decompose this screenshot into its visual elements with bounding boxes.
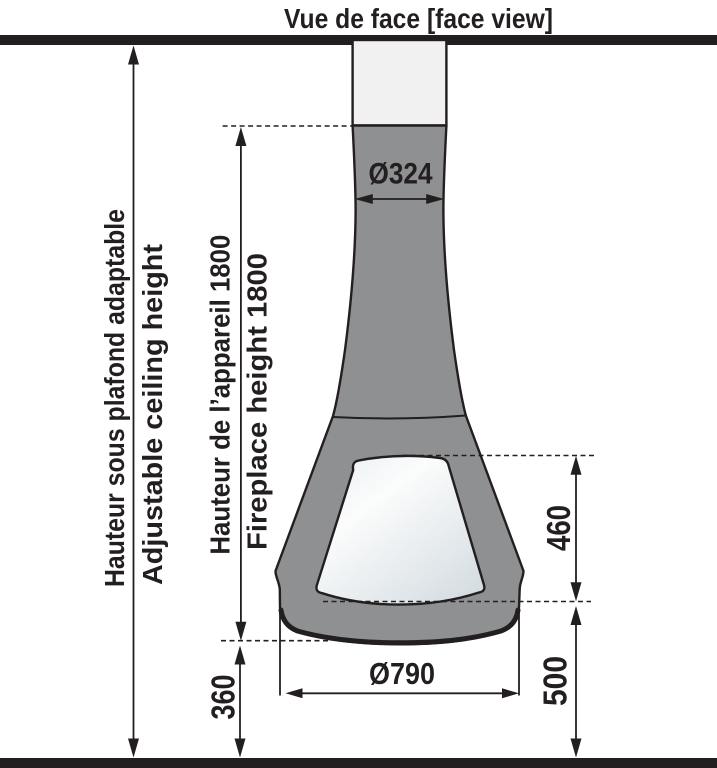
svg-text:Hauteur sous plafond adaptable: Hauteur sous plafond adaptable bbox=[99, 209, 130, 587]
svg-text:360: 360 bbox=[205, 675, 242, 720]
svg-text:Adjustable ceiling height: Adjustable ceiling height bbox=[137, 244, 168, 585]
svg-text:Ø790: Ø790 bbox=[369, 656, 435, 691]
svg-text:500: 500 bbox=[537, 656, 574, 706]
svg-text:Fireplace height 1800: Fireplace height 1800 bbox=[242, 253, 273, 550]
svg-text:Hauteur de l’appareil 1800: Hauteur de l’appareil 1800 bbox=[205, 235, 236, 555]
svg-text:460: 460 bbox=[540, 505, 577, 551]
svg-text:Ø324: Ø324 bbox=[369, 158, 433, 191]
svg-text:Vue de face [face view]: Vue de face [face view] bbox=[284, 3, 553, 34]
